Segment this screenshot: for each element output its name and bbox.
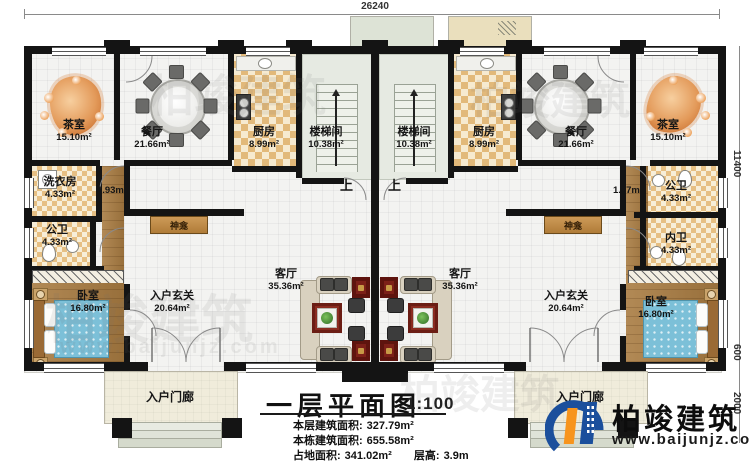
room-name: 公卫 — [665, 180, 687, 192]
room-name: 餐厅 — [141, 126, 163, 138]
dimension-tick — [719, 9, 720, 19]
plan-scale: 1:100 — [406, 394, 454, 414]
pillow-icon — [44, 303, 56, 327]
room-label-tea-left: 茶室 15.10m² — [56, 119, 91, 144]
height-label: 层高: — [414, 450, 440, 462]
wall-right — [718, 46, 726, 178]
room-name: 餐厅 — [565, 126, 587, 138]
dimension-line-right — [739, 46, 740, 371]
room-name: 客厅 — [449, 268, 471, 280]
brand-logo-icon — [545, 394, 607, 456]
room-name: 洗衣房 — [44, 176, 77, 188]
pillow-icon — [696, 303, 708, 327]
tea-stool-icon — [696, 93, 706, 103]
wall-partition — [406, 178, 448, 184]
stair-arrowhead-right — [410, 89, 418, 96]
room-area: 8.99m² — [469, 139, 499, 150]
stair-arrowhead-left — [332, 89, 340, 96]
room-label-bath-right: 公卫 4.33m² — [661, 180, 691, 205]
floor-plan-canvas: 26240 — [0, 0, 750, 465]
window — [718, 178, 728, 208]
brand-website: www.baijunjz.com — [612, 431, 750, 448]
armchair-icon — [387, 326, 404, 341]
room-area: 4.33m² — [661, 193, 691, 204]
armchair-icon — [348, 326, 365, 341]
wall-partition — [296, 54, 302, 178]
chair-icon — [136, 99, 150, 114]
room-label-living-left: 客厅 35.36m² — [268, 268, 303, 293]
footprint-value: 341.02m² — [345, 450, 392, 462]
floor-area-value: 327.79m² — [367, 420, 414, 432]
room-label-dining-left: 餐厅 21.66m² — [134, 126, 169, 151]
porch-column — [508, 418, 528, 438]
room-area: 16.80m² — [70, 303, 105, 314]
window — [644, 47, 698, 56]
room-name: 厨房 — [473, 126, 495, 138]
hall-area-right: 1.77m² — [613, 184, 643, 197]
burner-icon — [239, 108, 249, 118]
room-area: 4.33m² — [42, 237, 72, 248]
kitchen-sink-icon — [480, 58, 494, 69]
wall-partition — [90, 222, 96, 266]
room-name: 入户玄关 — [544, 290, 588, 302]
footprint-line: 占地面积:341.02m² 层高:3.9m — [293, 447, 469, 463]
area-value: 1.93m² — [97, 185, 127, 196]
wall-partition — [518, 160, 626, 166]
room-name: 楼梯间 — [397, 126, 430, 138]
stove-icon — [236, 94, 251, 120]
wall-partition — [634, 266, 718, 270]
cushion-icon — [418, 278, 432, 291]
floor-area-label: 本层建筑面积: — [293, 420, 363, 432]
window — [434, 363, 504, 373]
window — [460, 47, 504, 56]
wall-partition — [32, 266, 104, 270]
wall-partition — [124, 160, 232, 166]
tea-stool-icon — [669, 76, 678, 85]
window — [52, 47, 106, 56]
tea-stool-icon — [40, 111, 49, 120]
wall-partition — [302, 178, 344, 184]
shrine-left: 神龛 — [150, 216, 208, 234]
window — [718, 300, 728, 348]
room-label-dining-right: 餐厅 21.66m² — [558, 126, 593, 151]
window — [24, 228, 34, 258]
room-area: 15.10m² — [650, 132, 685, 143]
building-area-label: 本栋建筑面积: — [293, 435, 363, 447]
tea-stool-icon — [95, 112, 104, 121]
kitchen-sink-icon — [258, 58, 272, 69]
room-name: 茶室 — [657, 119, 679, 131]
chair-icon — [553, 65, 568, 79]
room-name: 内卫 — [665, 232, 687, 244]
porch-column — [112, 418, 132, 438]
tv-mat-icon — [380, 277, 398, 298]
stove-icon — [501, 94, 516, 120]
room-area: 21.66m² — [558, 139, 593, 150]
cushion-icon — [334, 348, 348, 361]
chair-icon — [588, 99, 602, 114]
stair-up-label-left: 上 — [340, 175, 353, 194]
porch-label-left: 入户门廊 — [146, 391, 194, 404]
room-area: 21.66m² — [134, 139, 169, 150]
plant-icon — [321, 312, 333, 324]
room-label-foyer-right: 入户玄关 20.64m² — [544, 290, 588, 315]
room-name: 客厅 — [275, 268, 297, 280]
tv-mat-icon — [380, 340, 398, 361]
height-value: 3.9m — [444, 450, 469, 462]
room-label-laundry-left: 洗衣房 4.33m² — [44, 176, 77, 201]
building-area-value: 655.58m² — [367, 435, 414, 447]
room-label-bedroom-left: 卧室 16.80m² — [70, 290, 105, 315]
room-area: 8.99m² — [249, 139, 279, 150]
dimension-line-top — [24, 14, 720, 15]
coffee-table-icon-right — [408, 303, 438, 333]
room-label-tea-right: 茶室 15.10m² — [650, 119, 685, 144]
wall-partition — [232, 166, 302, 172]
cushion-icon — [334, 278, 348, 291]
room-area: 20.64m² — [548, 303, 583, 314]
tea-stool-icon — [44, 93, 54, 103]
pillow-icon — [696, 330, 708, 354]
burner-icon — [504, 108, 514, 118]
pillow-icon — [44, 330, 56, 354]
wall-right — [718, 348, 726, 371]
room-area: 4.33m² — [661, 245, 691, 256]
shrine-label: 神龛 — [170, 219, 188, 232]
wall-partition — [640, 218, 646, 266]
wall-partition — [448, 166, 518, 172]
room-name: 入户玄关 — [150, 290, 194, 302]
tv-mat-icon — [352, 277, 370, 298]
room-label-foyer-left: 入户玄关 20.64m² — [150, 290, 194, 315]
room-name: 卧室 — [77, 290, 99, 302]
building-area-line: 本栋建筑面积:655.58m² — [293, 432, 414, 448]
room-name: 厨房 — [253, 126, 275, 138]
window — [718, 228, 728, 258]
window — [24, 300, 34, 348]
coffee-table-icon-left — [312, 303, 342, 333]
cushion-icon — [404, 348, 418, 361]
floor-area-line: 本层建筑面积:327.79m² — [293, 417, 414, 433]
pillar — [620, 40, 646, 50]
stair-up-label-right: 上 — [388, 175, 401, 194]
wall-partition — [634, 212, 718, 218]
plant-icon — [417, 312, 429, 324]
wall-left — [24, 348, 32, 371]
wall-center-cap — [342, 371, 408, 382]
room-name: 茶室 — [63, 119, 85, 131]
wall-partition — [516, 54, 522, 160]
wall-right — [718, 258, 726, 300]
wall-partition — [124, 284, 130, 310]
wall-partition — [448, 54, 454, 178]
room-label-kitchen-left: 厨房 8.99m² — [249, 126, 279, 151]
wall-partition — [620, 284, 626, 310]
burner-icon — [239, 98, 249, 108]
room-area: 10.38m² — [308, 139, 343, 150]
room-label-stairwell-left: 楼梯间 10.38m² — [308, 126, 343, 151]
dimension-top-width: 26240 — [340, 1, 410, 12]
hall-area-left: 1.93m² — [97, 184, 127, 197]
tea-stool-icon — [701, 111, 710, 120]
porch-column — [222, 418, 242, 438]
chair-icon — [169, 65, 184, 79]
window — [544, 47, 610, 56]
room-area: 20.64m² — [154, 303, 189, 314]
room-area: 16.80m² — [638, 309, 673, 320]
dimension-right-height: 11400 — [731, 150, 742, 177]
room-name: 楼梯间 — [309, 126, 342, 138]
room-label-inner-bath-right: 内卫 4.33m² — [661, 232, 691, 257]
room-label-kitchen-right: 厨房 8.99m² — [469, 126, 499, 151]
tv-mat-icon — [352, 340, 370, 361]
wall-partition — [124, 209, 244, 216]
dimension-right-mid: 600 — [731, 344, 742, 361]
room-label-bath-left: 公卫 4.33m² — [42, 224, 72, 249]
wall-left — [24, 208, 32, 228]
room-label-living-right: 客厅 35.36m² — [442, 268, 477, 293]
room-name: 公卫 — [46, 224, 68, 236]
wall-center — [371, 46, 379, 371]
room-name: 入户门廊 — [146, 390, 194, 404]
room-area: 4.33m² — [45, 189, 75, 200]
pillar — [218, 40, 244, 50]
chair-icon — [169, 133, 184, 147]
wall-partition — [506, 209, 626, 216]
burner-icon — [504, 98, 514, 108]
room-area: 35.36m² — [442, 281, 477, 292]
dimension-tick — [24, 9, 25, 19]
porch-step — [118, 438, 222, 448]
wall-left — [24, 258, 32, 300]
footprint-label: 占地面积: — [293, 450, 341, 462]
window — [44, 363, 104, 373]
shrine-label: 神龛 — [564, 219, 582, 232]
wall-partition — [124, 336, 130, 362]
cushion-icon — [404, 278, 418, 291]
chair-icon — [204, 99, 218, 114]
cushion-icon — [320, 348, 334, 361]
room-label-stairwell-right: 楼梯间 10.38m² — [396, 126, 431, 151]
cushion-icon — [418, 348, 432, 361]
wall-partition — [620, 336, 626, 362]
wall-partition — [650, 160, 720, 166]
wall-partition — [114, 54, 120, 160]
window — [646, 363, 706, 373]
pillar — [506, 40, 532, 50]
room-name: 卧室 — [645, 296, 667, 308]
wall-partition — [24, 160, 100, 166]
window — [24, 178, 34, 208]
window — [246, 47, 290, 56]
armchair-icon — [348, 298, 365, 313]
room-area: 35.36m² — [268, 281, 303, 292]
shrine-right: 神龛 — [544, 216, 602, 234]
window — [246, 363, 316, 373]
room-label-bedroom-right: 卧室 16.80m² — [638, 296, 673, 321]
hatch-mark-icon — [498, 21, 516, 35]
area-value: 1.77m² — [613, 185, 643, 196]
wall-right — [718, 208, 726, 228]
wall-left — [24, 46, 32, 178]
wall-partition — [228, 54, 234, 160]
pillar — [362, 40, 388, 50]
room-area: 10.38m² — [396, 139, 431, 150]
title-underline — [260, 413, 446, 415]
wall-partition — [630, 54, 636, 160]
window — [140, 47, 206, 56]
cushion-icon — [320, 278, 334, 291]
armchair-icon — [387, 298, 404, 313]
pillar — [104, 40, 130, 50]
tea-stool-icon — [72, 76, 81, 85]
room-area: 15.10m² — [56, 132, 91, 143]
